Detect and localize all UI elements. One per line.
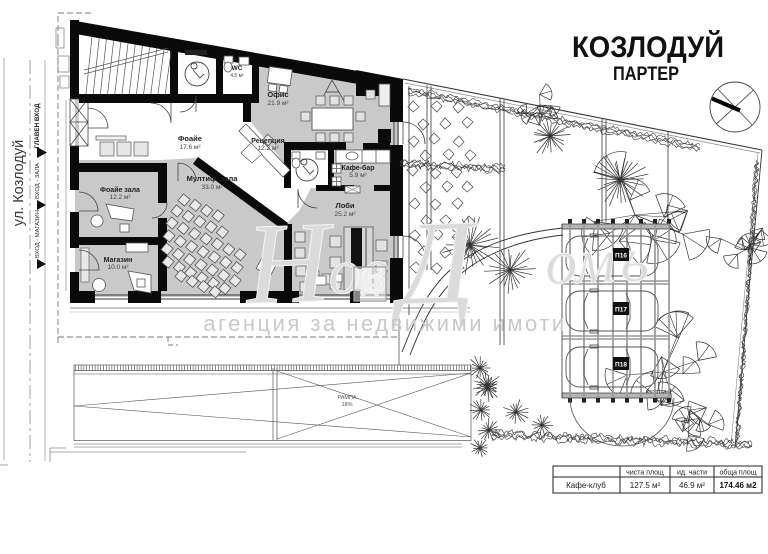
svg-text:омъ: омъ (544, 223, 650, 298)
svg-text:Фоайе зала: Фоайе зала (100, 186, 140, 194)
svg-text:ВХОД - ЗАЛА: ВХОД - ЗАЛА (35, 163, 41, 199)
svg-text:12.2 м²: 12.2 м² (257, 145, 279, 152)
svg-text:17.6 м²: 17.6 м² (179, 144, 201, 151)
svg-text:4.5 м²: 4.5 м² (230, 73, 244, 79)
svg-text:5.9 м²: 5.9 м² (349, 172, 367, 179)
svg-text:174.46 м2: 174.46 м2 (719, 481, 757, 490)
svg-text:Офис: Офис (267, 90, 288, 99)
svg-text:Мултиф. зала: Мултиф. зала (187, 174, 239, 183)
svg-text:Н: Н (359, 270, 381, 303)
svg-text:Фоайе: Фоайе (178, 134, 202, 143)
svg-text:П17: П17 (615, 307, 627, 314)
svg-text:П18: П18 (615, 362, 627, 369)
svg-text:агенция за недвижими имоти: агенция за недвижими имоти (203, 311, 566, 336)
svg-text:127.5 м²: 127.5 м² (630, 481, 661, 490)
svg-text:WC: WC (232, 65, 243, 72)
svg-text:12.2 м²: 12.2 м² (109, 194, 131, 201)
svg-text:Рецепция: Рецепция (251, 138, 285, 145)
svg-text:Д: Д (386, 194, 483, 330)
svg-text:Кафе-бар: Кафе-бар (341, 164, 374, 172)
svg-text:ид. части: ид. части (677, 470, 707, 477)
svg-text:П16: П16 (615, 253, 627, 260)
svg-text:ПАРТЕР: ПАРТЕР (613, 64, 679, 85)
svg-text:25.2 м²: 25.2 м² (334, 211, 356, 218)
svg-text:чиста площ: чиста площ (626, 470, 664, 477)
svg-text:Лоби: Лоби (335, 201, 354, 210)
svg-text:РАМПА: РАМПА (337, 395, 357, 401)
svg-text:Н: Н (242, 198, 337, 329)
svg-text:ВХОД - МАГАЗИН: ВХОД - МАГАЗИН (35, 210, 41, 258)
svg-text:Кафе-клуб: Кафе-клуб (566, 481, 606, 490)
svg-text:Магазин: Магазин (104, 257, 133, 264)
svg-text:КОЗЛОДУЙ: КОЗЛОДУЙ (572, 30, 724, 64)
svg-text:46.9 м²: 46.9 м² (679, 481, 705, 490)
svg-text:ГЛАВЕН ВХОД: ГЛАВЕН ВХОД (34, 103, 41, 149)
svg-text:18%: 18% (341, 402, 352, 408)
svg-text:обща площ: обща площ (719, 469, 756, 477)
svg-text:33.0 м²: 33.0 м² (201, 184, 223, 191)
svg-text:ул. Козлодуй: ул. Козлодуй (11, 140, 27, 226)
svg-text:10.0 м²: 10.0 м² (107, 264, 129, 271)
svg-text:21.9 м²: 21.9 м² (267, 100, 289, 107)
